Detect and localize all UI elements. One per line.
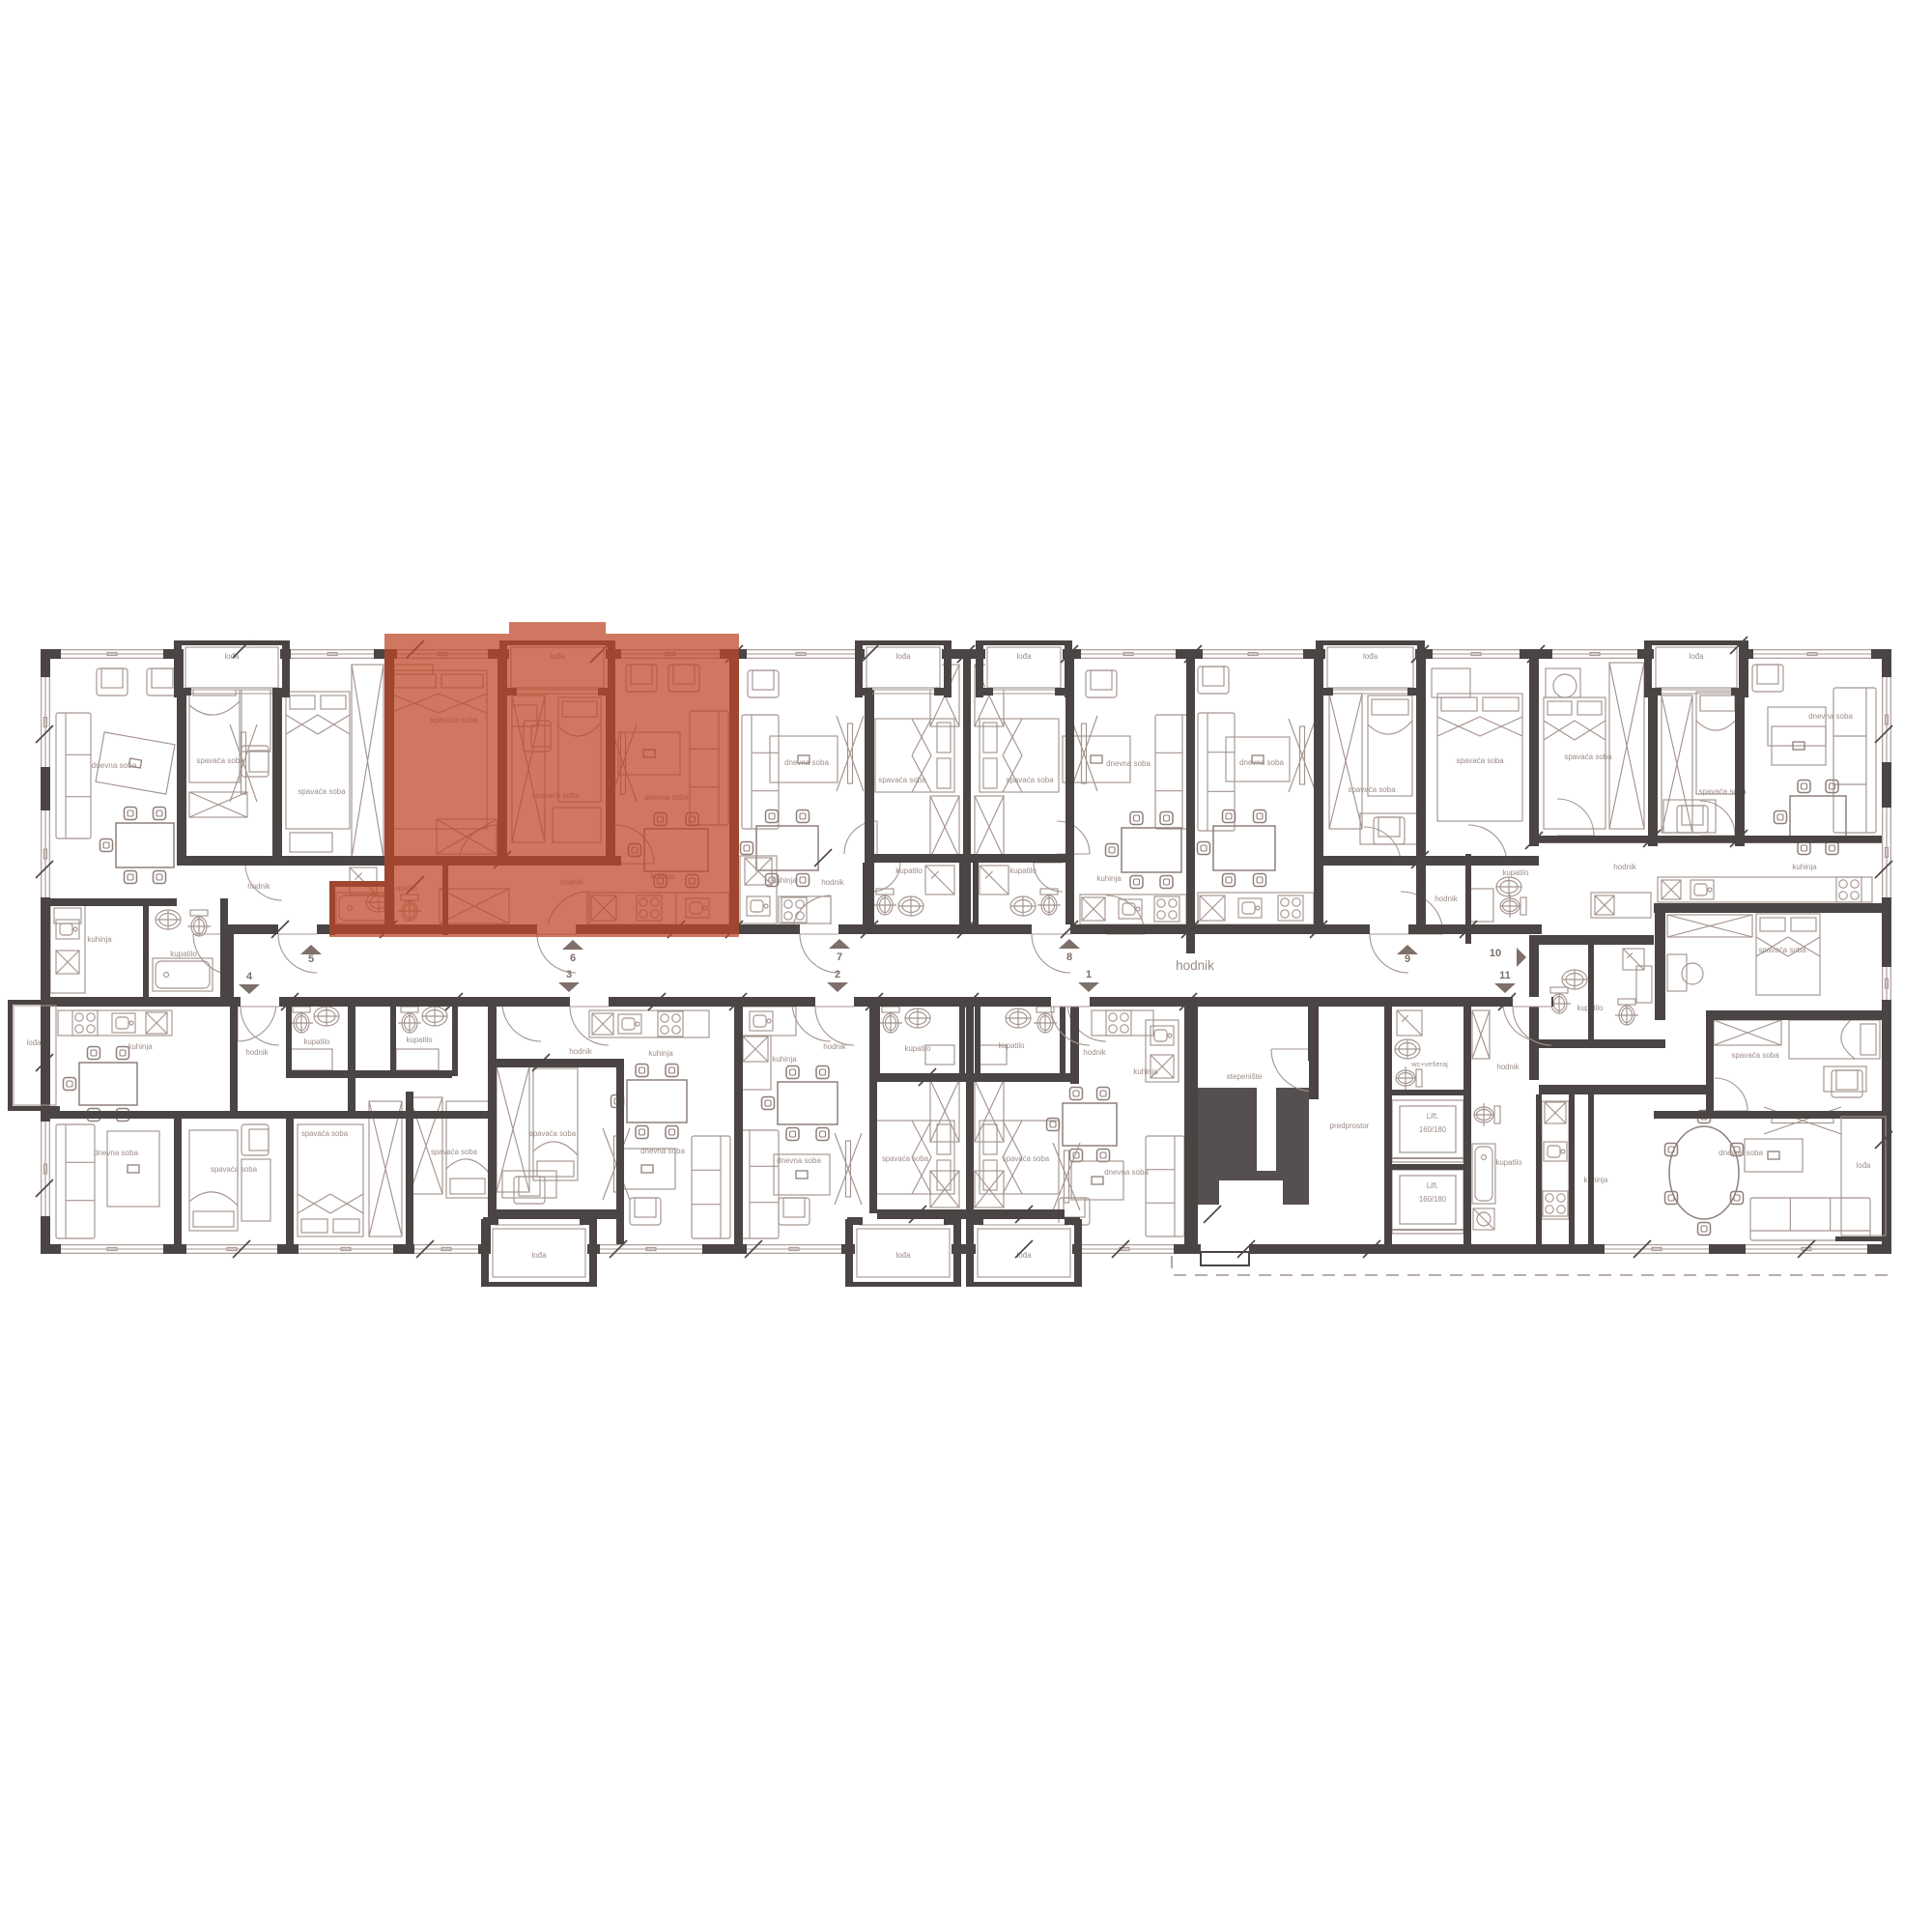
svg-text:spavaća soba: spavaća soba — [298, 787, 346, 796]
svg-text:kupatilo: kupatilo — [170, 950, 197, 958]
svg-text:wc+vešeraj: wc+vešeraj — [1410, 1060, 1448, 1068]
svg-text:10: 10 — [1490, 948, 1501, 959]
svg-text:2: 2 — [835, 969, 840, 980]
svg-text:3: 3 — [566, 969, 572, 980]
svg-text:kupatilo: kupatilo — [905, 1044, 932, 1053]
svg-text:spavaća soba: spavaća soba — [529, 1129, 577, 1138]
svg-text:lođa: lođa — [1016, 652, 1032, 661]
svg-text:dnevna soba: dnevna soba — [1719, 1149, 1763, 1157]
svg-text:spavaća soba: spavaća soba — [196, 756, 244, 765]
svg-text:Lift.: Lift. — [1427, 1112, 1439, 1121]
svg-text:dnevna soba: dnevna soba — [1239, 758, 1284, 767]
svg-text:spavaća soba: spavaća soba — [1731, 1051, 1779, 1060]
svg-text:spavaća soba: spavaća soba — [1758, 946, 1806, 954]
svg-text:hodnik: hodnik — [569, 1047, 593, 1056]
svg-text:spavaća soba: spavaća soba — [1456, 756, 1504, 765]
svg-text:spavaća soba: spavaća soba — [301, 1129, 349, 1138]
svg-text:kuhinja: kuhinja — [1133, 1067, 1158, 1076]
svg-text:kuhinja: kuhinja — [1096, 874, 1122, 883]
svg-text:7: 7 — [837, 952, 842, 963]
svg-text:lođa: lođa — [895, 1251, 911, 1260]
svg-text:kuhinja: kuhinja — [772, 1055, 797, 1064]
svg-text:dnevna soba: dnevna soba — [1104, 1168, 1149, 1177]
svg-text:kuhinja: kuhinja — [1584, 1176, 1608, 1184]
svg-text:kuhinja: kuhinja — [772, 876, 797, 885]
svg-text:lođa: lođa — [1857, 1161, 1871, 1170]
svg-text:lođa: lođa — [895, 652, 911, 661]
svg-text:spavaća soba: spavaća soba — [211, 1165, 258, 1174]
svg-text:kupatilo: kupatilo — [895, 867, 923, 875]
svg-text:dnevna soba: dnevna soba — [1106, 759, 1151, 768]
svg-text:hodnik: hodnik — [246, 1048, 269, 1057]
svg-text:6: 6 — [570, 952, 576, 964]
svg-text:kupatilo: kupatilo — [407, 1036, 434, 1044]
svg-text:lođa: lođa — [1016, 1251, 1032, 1260]
svg-text:hodnik: hodnik — [1176, 958, 1214, 973]
svg-text:kupatilo: kupatilo — [999, 1041, 1026, 1050]
svg-text:hodnik: hodnik — [1435, 895, 1459, 903]
svg-text:hodnik: hodnik — [1497, 1063, 1520, 1071]
svg-text:1: 1 — [1086, 969, 1092, 980]
svg-text:kupatilo: kupatilo — [1496, 1158, 1523, 1167]
svg-text:stepenište: stepenište — [1227, 1072, 1263, 1081]
svg-text:8: 8 — [1066, 952, 1072, 963]
svg-text:kuhinja: kuhinja — [1792, 863, 1817, 871]
svg-text:dnevna soba: dnevna soba — [92, 761, 137, 770]
svg-text:lođa: lođa — [27, 1038, 42, 1047]
svg-text:kupatilo: kupatilo — [304, 1037, 331, 1046]
svg-text:kuhinja: kuhinja — [648, 1049, 673, 1058]
svg-text:kuhinja: kuhinja — [87, 935, 112, 944]
svg-text:dnevna soba: dnevna soba — [94, 1149, 138, 1157]
svg-text:160/180: 160/180 — [1419, 1195, 1447, 1204]
svg-text:kupatilo: kupatilo — [1009, 867, 1037, 875]
svg-text:spavaća soba: spavaća soba — [882, 1154, 929, 1163]
svg-text:Lift.: Lift. — [1427, 1181, 1439, 1190]
svg-text:lođa: lođa — [1363, 652, 1378, 661]
svg-text:kuhinja: kuhinja — [128, 1042, 153, 1051]
svg-text:4: 4 — [246, 971, 253, 982]
svg-text:spavaća soba: spavaća soba — [1006, 776, 1054, 784]
svg-text:lođa: lođa — [531, 1251, 547, 1260]
svg-text:hodnik: hodnik — [1613, 863, 1637, 871]
svg-text:predprostor: predprostor — [1330, 1122, 1370, 1130]
svg-text:spavaća soba: spavaća soba — [1003, 1154, 1050, 1163]
svg-text:hodnik: hodnik — [821, 878, 845, 887]
svg-text:dnevna soba: dnevna soba — [784, 758, 829, 767]
svg-text:9: 9 — [1405, 953, 1410, 965]
svg-text:spavaća soba: spavaća soba — [878, 776, 926, 784]
svg-text:spavaća soba: spavaća soba — [1564, 753, 1612, 761]
svg-text:kupatilo: kupatilo — [1503, 868, 1530, 877]
svg-text:dnevna soba: dnevna soba — [1808, 712, 1853, 721]
svg-text:hodnik: hodnik — [1083, 1048, 1107, 1057]
svg-text:dnevna soba: dnevna soba — [640, 1147, 685, 1155]
svg-text:spavaća soba: spavaća soba — [431, 1148, 478, 1156]
svg-text:dnevna soba: dnevna soba — [777, 1156, 821, 1165]
svg-text:160/180: 160/180 — [1419, 1125, 1447, 1134]
svg-text:5: 5 — [308, 953, 314, 965]
svg-text:spavaća soba: spavaća soba — [1348, 785, 1396, 794]
svg-text:11: 11 — [1499, 970, 1511, 981]
svg-text:lođa: lođa — [1689, 652, 1704, 661]
